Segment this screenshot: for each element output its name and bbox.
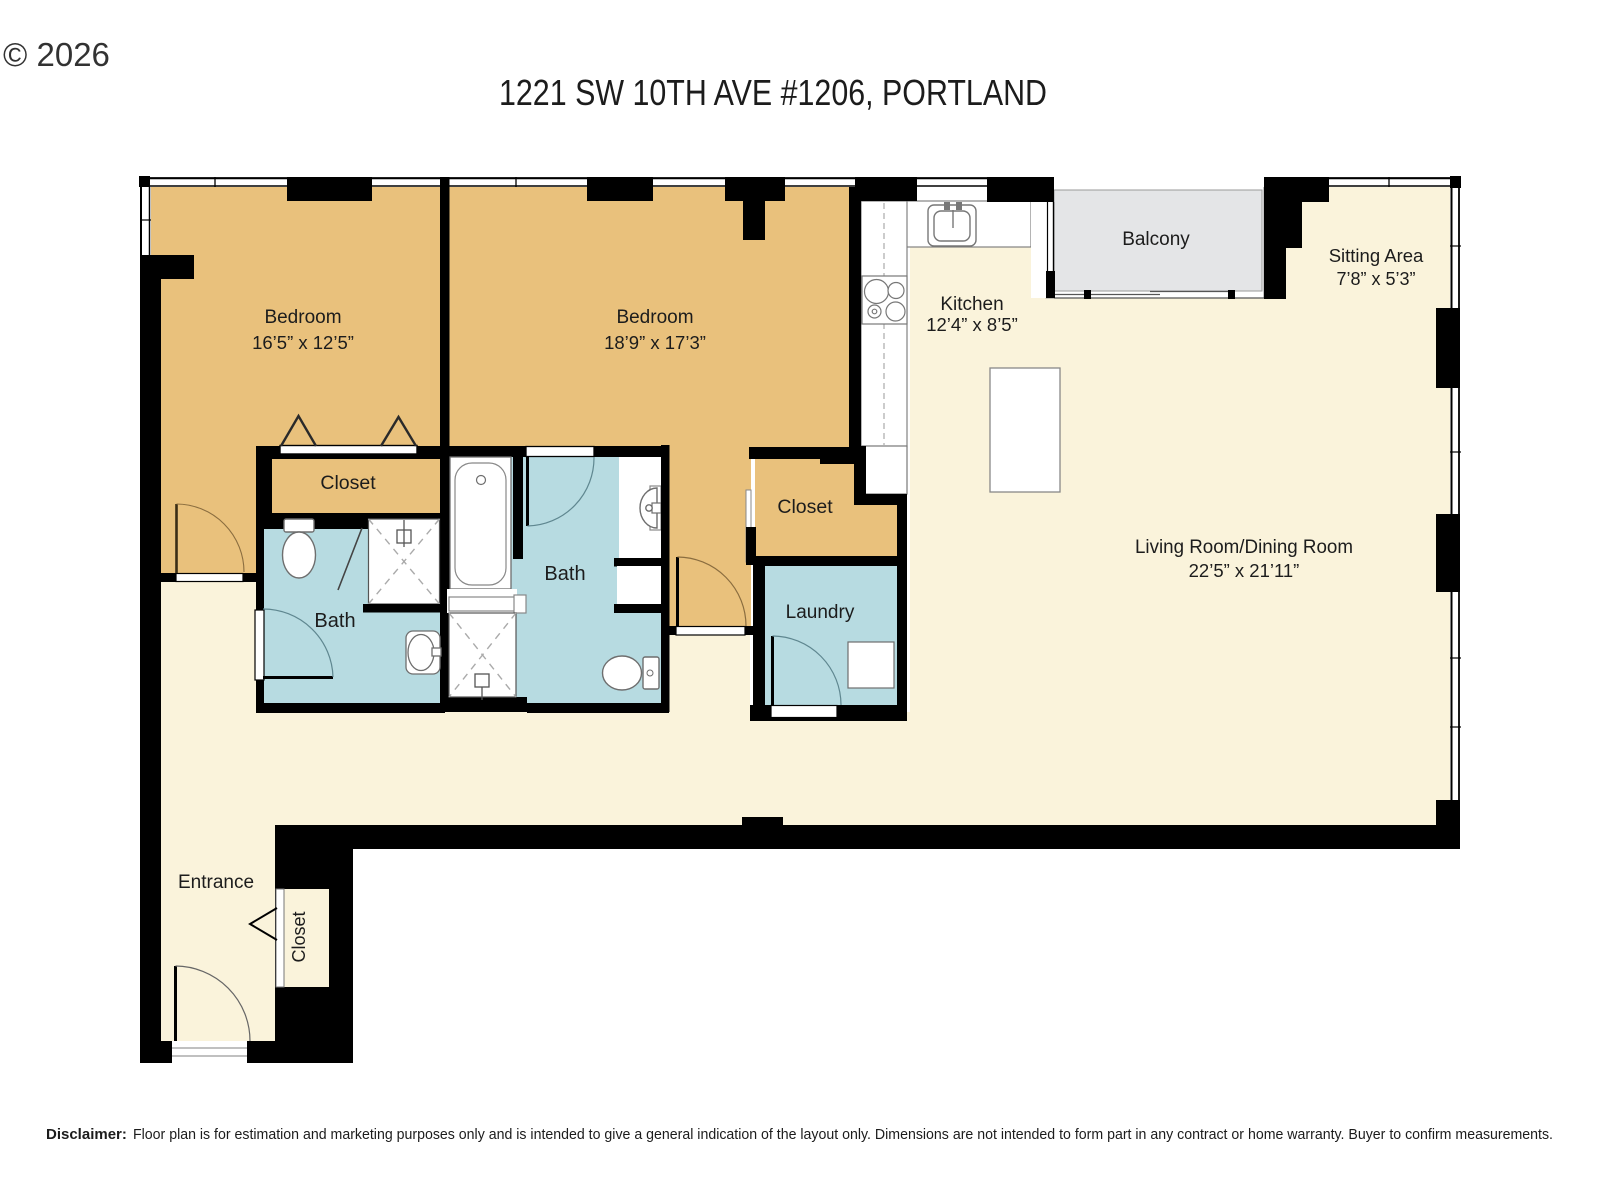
svg-text:1221 SW 10TH AVE #1206, PORTLA: 1221 SW 10TH AVE #1206, PORTLAND (499, 72, 1047, 113)
svg-text:Closet: Closet (289, 911, 309, 962)
svg-text:Floor plan is for estimation a: Floor plan is for estimation and marketi… (133, 1126, 1553, 1143)
svg-text:22’5” x 21’11”: 22’5” x 21’11” (1189, 560, 1300, 581)
svg-text:Entrance: Entrance (178, 872, 254, 893)
svg-text:© 2026: © 2026 (3, 36, 110, 73)
svg-text:Laundry: Laundry (786, 602, 855, 623)
svg-text:Bath: Bath (314, 610, 355, 632)
svg-text:Kitchen: Kitchen (940, 294, 1003, 315)
svg-text:Bedroom: Bedroom (616, 307, 693, 328)
svg-text:Closet: Closet (777, 496, 833, 518)
svg-text:Bath: Bath (544, 563, 585, 585)
svg-text:Closet: Closet (320, 472, 376, 494)
svg-text:16’5” x 12’5”: 16’5” x 12’5” (252, 332, 354, 353)
svg-text:12’4” x 8’5”: 12’4” x 8’5” (926, 314, 1018, 335)
svg-text:Disclaimer:: Disclaimer: (46, 1126, 127, 1143)
svg-text:7’8” x 5’3”: 7’8” x 5’3” (1336, 269, 1415, 289)
svg-text:Bedroom: Bedroom (264, 307, 341, 328)
svg-text:18’9” x 17’3”: 18’9” x 17’3” (604, 332, 706, 353)
svg-text:Living Room/Dining Room: Living Room/Dining Room (1135, 537, 1353, 558)
svg-text:Sitting Area: Sitting Area (1329, 245, 1424, 266)
svg-text:Balcony: Balcony (1122, 229, 1190, 250)
